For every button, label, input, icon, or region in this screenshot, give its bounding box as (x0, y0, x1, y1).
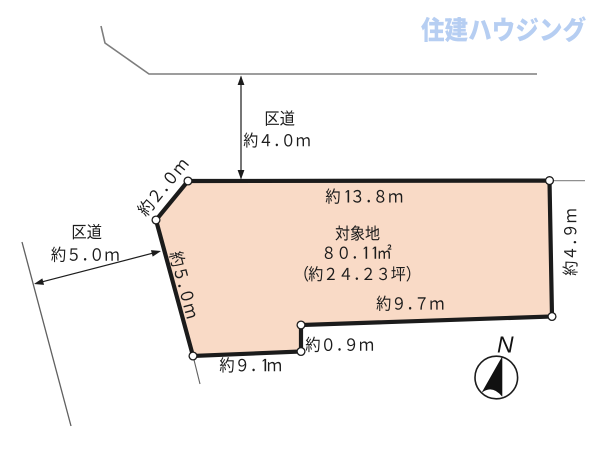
svg-text:N: N (497, 332, 514, 358)
